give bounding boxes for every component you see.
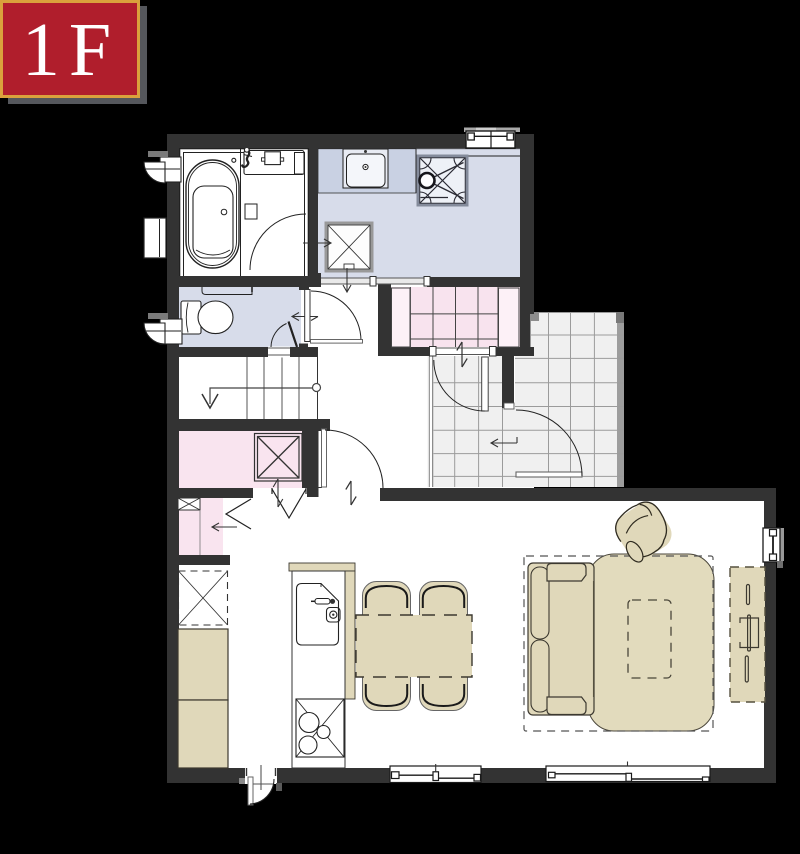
svg-text:1F: 1F (22, 8, 120, 92)
